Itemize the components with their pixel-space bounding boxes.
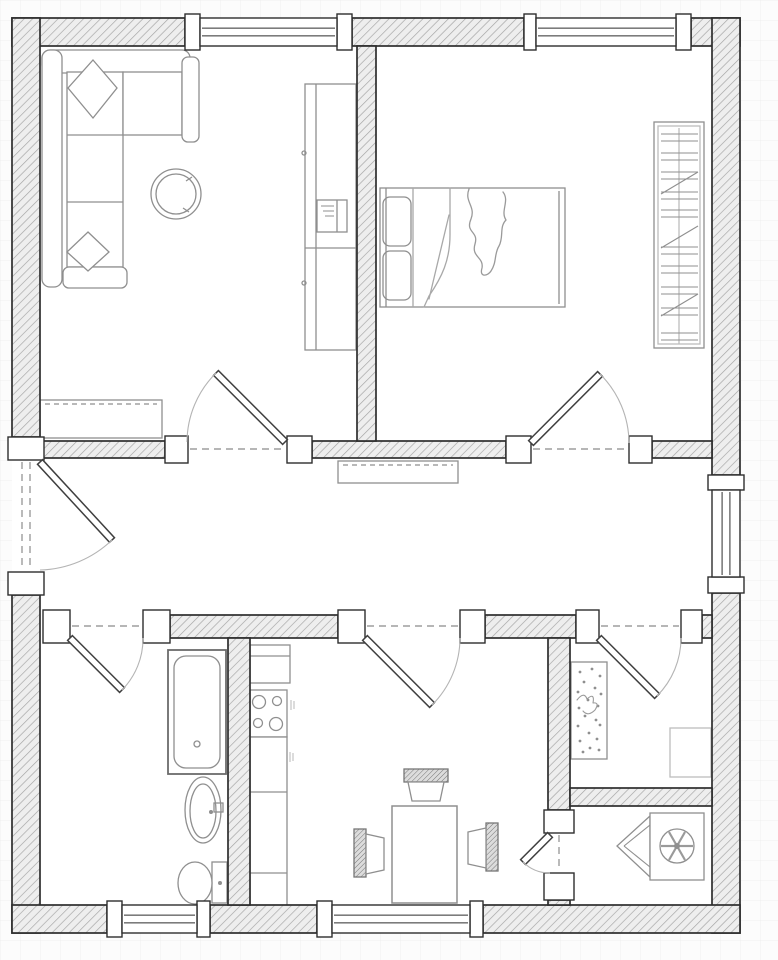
kitchen-cabinet [250,645,290,683]
window [200,18,337,46]
wardrobe [654,122,704,348]
toilet [178,862,227,904]
floor-plan-page [0,0,778,960]
coffee-table [151,169,201,219]
window [332,905,470,933]
dining-table [392,806,457,903]
chair-top [404,769,448,801]
kitchen-counter [250,737,287,907]
window [122,905,197,933]
double-bed [380,188,565,307]
window [536,18,676,46]
tv-unit [302,84,356,350]
floor-plan-drawing [0,0,778,960]
sideboard [40,400,162,438]
window [712,490,740,577]
hallway-shelf [338,461,458,483]
bathtub [168,650,226,774]
pantry-shelf [571,662,607,759]
